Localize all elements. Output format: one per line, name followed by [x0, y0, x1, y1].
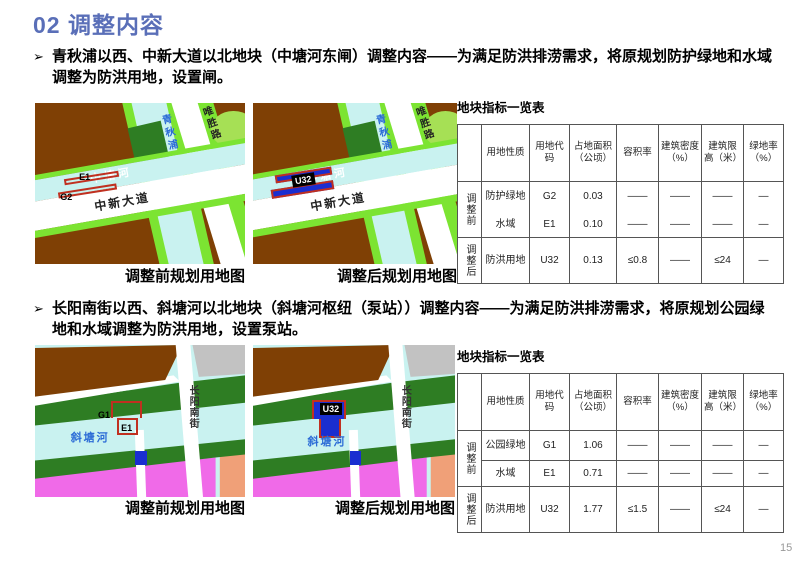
parcel-label-u32: U32: [320, 403, 343, 415]
caption-before-2: 调整前规划用地图: [35, 497, 245, 518]
cell: 防洪用地: [482, 487, 530, 533]
cell: ——: [617, 182, 659, 212]
cell: 0.10: [570, 212, 617, 238]
cell: ≤0.8: [617, 238, 659, 284]
parcel-label-g2: G2: [60, 192, 72, 202]
cell: 防护绿地: [482, 182, 530, 212]
cell: U32: [530, 238, 570, 284]
cell: G1: [530, 431, 570, 461]
cell: —: [744, 461, 784, 487]
cell: E1: [530, 461, 570, 487]
header-cell: 建筑限高（米）: [702, 125, 744, 182]
parcel-label-e1: E1: [121, 423, 132, 433]
river-label-xietanghe: 斜塘河: [71, 429, 110, 445]
cell: ——: [617, 212, 659, 238]
cell: 水域: [482, 212, 530, 238]
map-after-xietang: U32 斜塘河 长阳南街: [253, 345, 455, 497]
header-cell: 用地代码: [530, 125, 570, 182]
spec-table-2: 用地性质 用地代码 占地面积（公顷） 容积率 建筑密度（%） 建筑限高（米） 绿…: [457, 373, 784, 533]
header-cell: 建筑密度（%）: [659, 125, 702, 182]
table-1-title: 地块指标一览表: [457, 97, 785, 116]
parcel-g1-outline: [111, 401, 143, 418]
cell: ≤24: [702, 238, 744, 284]
cell: ≤1.5: [617, 487, 659, 533]
road-label-changyangnanjie: 长阳南街: [185, 385, 200, 429]
cell: ——: [659, 212, 702, 238]
cell: ——: [659, 431, 702, 461]
map-after-zhongtang: 青秋浦 唯胜路 中塘河 中新大道 U32: [253, 103, 457, 264]
cell: 防洪用地: [482, 238, 530, 284]
road-label-changyangnanjie: 长阳南街: [397, 385, 412, 429]
table-2-title: 地块指标一览表: [457, 346, 785, 365]
cell: ——: [702, 431, 744, 461]
cell: —: [744, 487, 784, 533]
cell: ——: [617, 461, 659, 487]
cell: —: [744, 431, 784, 461]
sluice-blue-square: [350, 451, 361, 465]
parcel-label-g1: G1: [98, 410, 110, 420]
header-cell: 用地性质: [482, 125, 530, 182]
bullet-2: ➢ 长阳南街以西、斜塘河以北地块（斜塘河枢纽（泵站））调整内容——为满足防洪排涝…: [33, 298, 773, 340]
cell: 公园绿地: [482, 431, 530, 461]
bullet-arrow-icon: ➢: [33, 298, 47, 340]
cell: 0.13: [570, 238, 617, 284]
cell: 水域: [482, 461, 530, 487]
cell: 0.03: [570, 182, 617, 212]
header-cell: 占地面积（公顷）: [570, 374, 617, 431]
header-cell: 绿地率（%）: [744, 125, 784, 182]
spec-table-1: 用地性质 用地代码 占地面积（公顷） 容积率 建筑密度（%） 建筑限高（米） 绿…: [457, 124, 784, 284]
cell: 1.77: [570, 487, 617, 533]
cell: U32: [530, 487, 570, 533]
river-label-xietanghe: 斜塘河: [308, 433, 347, 449]
header-cell: 占地面积（公顷）: [570, 125, 617, 182]
group-label: 调整前: [458, 182, 482, 238]
cell: ——: [702, 182, 744, 212]
cell: ——: [617, 431, 659, 461]
header-cell: [458, 125, 482, 182]
header-cell: 用地代码: [530, 374, 570, 431]
cell: G2: [530, 182, 570, 212]
map-before-zhongtang: 青秋浦 唯胜路 中塘河 中新大道 E1 G2: [35, 103, 245, 264]
header-cell: 容积率: [617, 374, 659, 431]
cell: 1.06: [570, 431, 617, 461]
sluice-blue-square: [135, 451, 147, 465]
cell: ——: [659, 238, 702, 284]
header-cell: 建筑密度（%）: [659, 374, 702, 431]
header-cell: 容积率: [617, 125, 659, 182]
header-cell: 用地性质: [482, 374, 530, 431]
page-number: 15: [780, 542, 792, 554]
page-title: 02 调整内容: [33, 6, 164, 40]
caption-before-1: 调整前规划用地图: [35, 265, 245, 286]
header-cell: [458, 374, 482, 431]
header-cell: 建筑限高（米）: [702, 374, 744, 431]
group-label: 调整后: [458, 487, 482, 533]
table-2-wrap: 地块指标一览表 用地性质 用地代码 占地面积（公顷） 容积率 建筑密度（%） 建…: [457, 346, 785, 533]
bullet-1: ➢ 青秋浦以西、中新大道以北地块（中塘河东闸）调整内容——为满足防洪排涝需求，将…: [33, 46, 773, 88]
caption-after-2: 调整后规划用地图: [253, 497, 455, 518]
cell: ——: [702, 461, 744, 487]
cell: ——: [659, 182, 702, 212]
caption-after-1: 调整后规划用地图: [253, 265, 457, 286]
bullet-1-text: 青秋浦以西、中新大道以北地块（中塘河东闸）调整内容——为满足防洪排涝需求，将原规…: [52, 46, 773, 88]
cell: ——: [659, 461, 702, 487]
cell: —: [744, 182, 784, 212]
cell: ——: [659, 487, 702, 533]
slide: 02 调整内容 ➢ 青秋浦以西、中新大道以北地块（中塘河东闸）调整内容——为满足…: [0, 0, 800, 566]
table-1-wrap: 地块指标一览表 用地性质 用地代码 占地面积（公顷） 容积率 建筑密度（%） 建…: [457, 97, 785, 284]
map-before-xietang: G1 E1 斜塘河 长阳南街: [35, 345, 245, 497]
parcel-label-e1: E1: [79, 172, 90, 182]
bullet-arrow-icon: ➢: [33, 46, 47, 88]
group-label: 调整后: [458, 238, 482, 284]
header-cell: 绿地率（%）: [744, 374, 784, 431]
cell: —: [744, 212, 784, 238]
cell: 0.71: [570, 461, 617, 487]
cell: ≤24: [702, 487, 744, 533]
group-label: 调整前: [458, 431, 482, 487]
cell: —: [744, 238, 784, 284]
cell: ——: [702, 212, 744, 238]
bullet-2-text: 长阳南街以西、斜塘河以北地块（斜塘河枢纽（泵站））调整内容——为满足防洪排涝需求…: [52, 298, 773, 340]
cell: E1: [530, 212, 570, 238]
